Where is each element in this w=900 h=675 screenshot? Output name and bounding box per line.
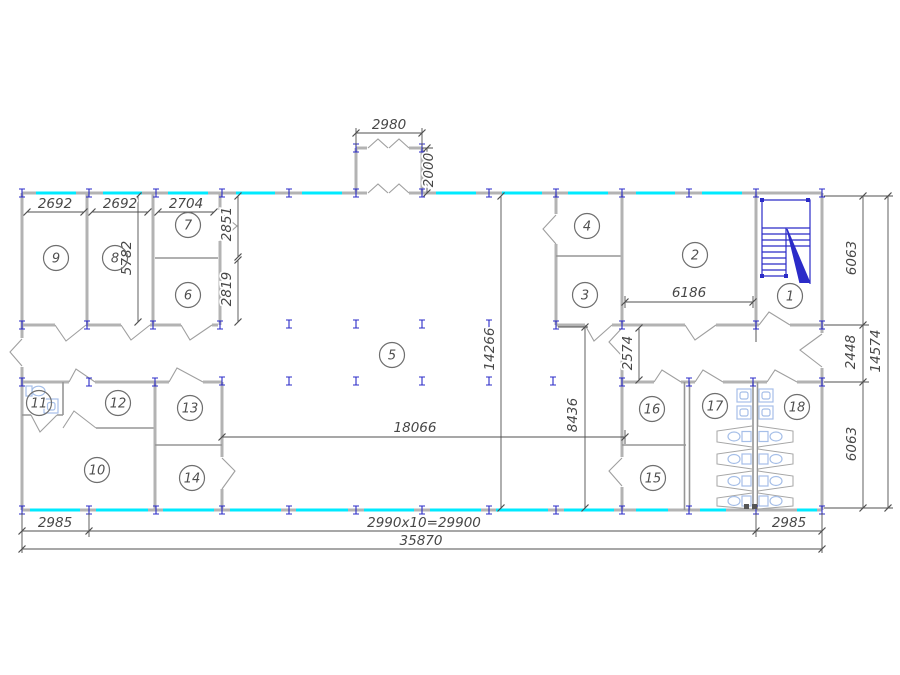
room-labels: 1 2 3 4 5 6 7 8 9 10 11 12 13 14 15 16 1… [27,213,810,491]
dim-right-corridor-width: 2574 [620,336,636,370]
staircase [760,198,810,284]
room-number: 8 [111,252,119,267]
room-number: 9 [52,252,60,267]
grid-marker [353,320,359,328]
dim-room7-depth: 2851 [219,207,235,241]
room-label-10: 10 [85,458,110,483]
toilet-stall [758,426,793,447]
room-label-12: 12 [106,391,131,416]
dim-room6-depth: 2819 [219,272,235,306]
room-label-13: 13 [178,396,203,421]
room-number: 1 [786,290,794,305]
room-label-8: 8 [103,246,128,271]
floor-plan-canvas: 2692 2692 2704 5782 2851 2819 2980 2000 … [0,0,900,675]
room-label-11: 11 [27,391,52,416]
stair-post [784,274,788,278]
dim-right-chain-middle: 2448 [843,335,859,369]
room-label-2: 2 [683,243,708,268]
dim-room7-width: 2704 [169,196,203,212]
room-label-16: 16 [640,397,665,422]
toilet-stall [758,471,793,491]
grid-marker [486,320,492,328]
sink-icon [737,406,751,419]
dim-hall-depth: 14266 [482,328,498,371]
dim-bottom-left-bay: 2985 [38,515,72,531]
grid-marker [550,377,556,385]
room-label-15: 15 [641,466,666,491]
stair-post [760,274,764,278]
floor-plan-page: 2692 2692 2704 5782 2851 2819 2980 2000 … [0,0,900,675]
room-label-9: 9 [44,246,69,271]
grid-marker [419,320,425,328]
dim-hall-width: 18066 [394,420,437,436]
room-number: 2 [691,249,699,264]
room-number: 10 [89,464,106,479]
room-label-3: 3 [573,283,598,308]
room-number: 12 [110,397,127,412]
grid-marker [353,377,359,385]
dim-bottom-total-width: 35870 [400,533,443,549]
room-label-7: 7 [176,213,201,238]
room-number: 16 [644,403,661,418]
room-number: 13 [182,402,199,417]
grid-marker [419,377,425,385]
room-number: 5 [388,349,396,364]
opening-room3 [585,321,612,329]
dim-porch-width: 2980 [372,117,406,133]
room-label-1: 1 [778,284,803,309]
room-label-14: 14 [180,466,205,491]
windows [30,193,817,510]
floor-drain-icon [744,504,749,509]
dim-bottom-bay-run: 2990x10=29900 [367,515,481,531]
room-label-5: 5 [380,343,405,368]
opening-right-entrance [818,333,826,368]
room-label-6: 6 [176,283,201,308]
dim-right-total-depth: 14574 [868,330,884,373]
wall-room15-17-double [685,382,690,510]
room-number: 11 [31,397,48,412]
dim-room2-width: 6186 [672,285,706,301]
room-label-18: 18 [785,395,810,420]
dim-right-chain-top: 6063 [844,241,860,275]
floor-drain-icon [752,504,757,509]
room-number: 17 [707,400,724,415]
sanitary-fixtures [26,386,793,509]
dim-right-wing-depth: 8436 [565,398,581,432]
stair-post [760,198,764,202]
opening-room12-bottom [63,424,96,432]
room-number: 6 [184,289,192,304]
toilet-stall [717,449,752,469]
stair-post [806,198,810,202]
room-label-17: 17 [703,394,728,419]
room-number: 4 [583,220,591,235]
dim-porch-depth: 2000 [421,153,437,187]
opening-room9 [55,321,86,329]
room-number: 3 [581,289,589,304]
grid-marker [286,320,292,328]
room-number: 14 [184,472,201,487]
room-label-4: 4 [575,214,600,239]
grid-marker [286,377,292,385]
toilet-stall [717,471,752,491]
toilet-stall [717,426,752,447]
dim-room9-width: 2692 [38,196,72,212]
dim-bottom-right-bay: 2985 [772,515,806,531]
wall-toilet-central-double [753,382,758,510]
room-number: 7 [184,219,193,234]
room-number: 18 [789,401,806,416]
grid-marker [486,377,492,385]
sink-icon [759,406,773,419]
sink-icon [737,389,751,402]
sink-icon [759,389,773,402]
porch-walls [356,148,422,193]
dim-right-chain-bottom: 6063 [844,427,860,461]
toilet-stall [758,493,793,509]
room-number: 15 [645,472,662,487]
stair-treads-left [762,234,786,276]
toilet-stall [758,449,793,469]
dim-room8-width: 2692 [103,196,137,212]
